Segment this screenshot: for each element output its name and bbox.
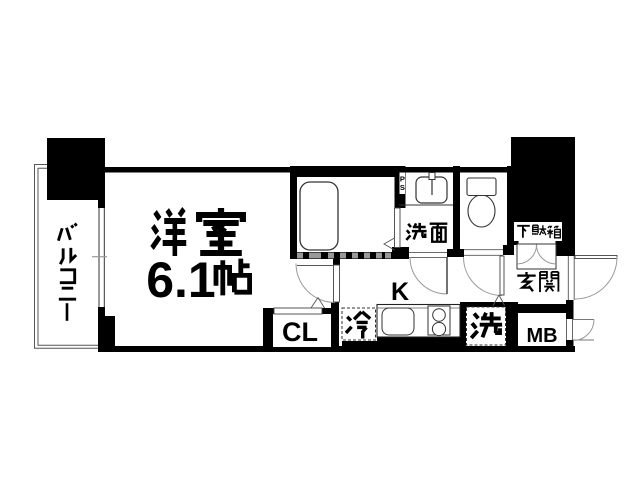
svg-text:CL: CL [282,317,318,347]
svg-text:K: K [391,278,409,306]
svg-text:MB: MB [526,325,557,347]
svg-text:S: S [400,183,405,192]
svg-text:6.1: 6.1 [146,252,216,308]
